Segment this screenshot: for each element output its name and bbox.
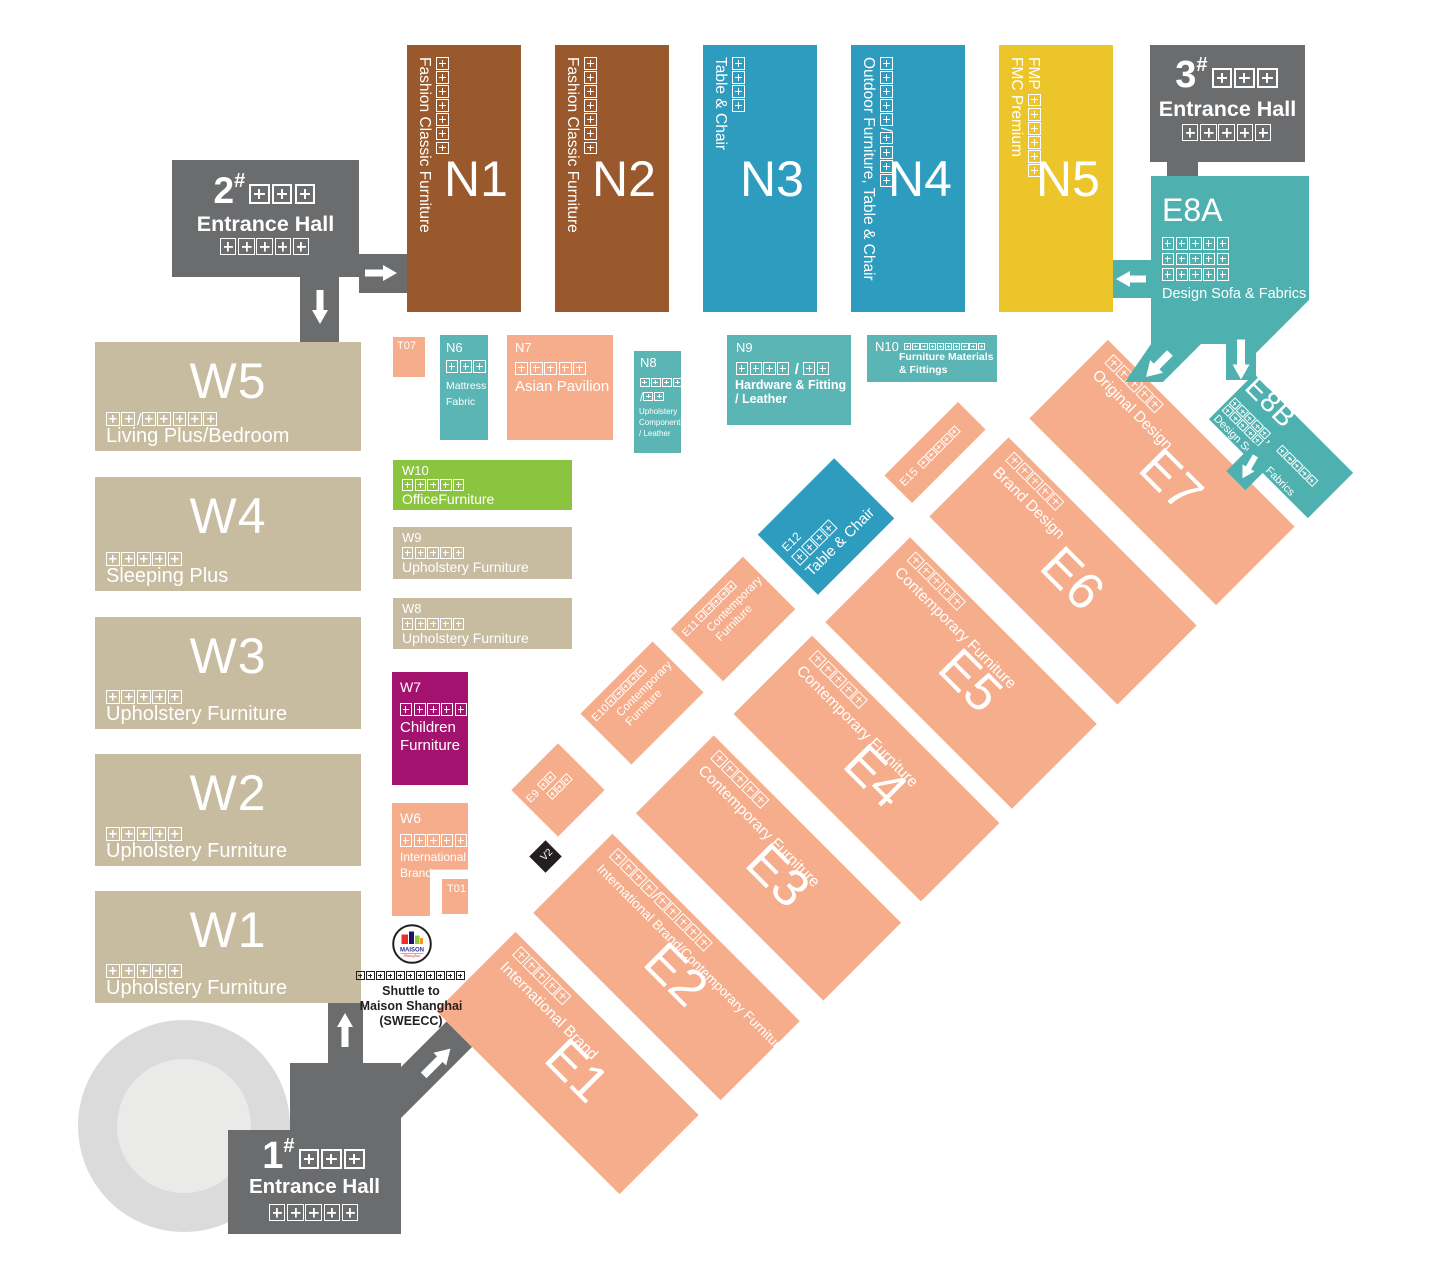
svg-text:Shanghai: Shanghai: [403, 953, 421, 958]
